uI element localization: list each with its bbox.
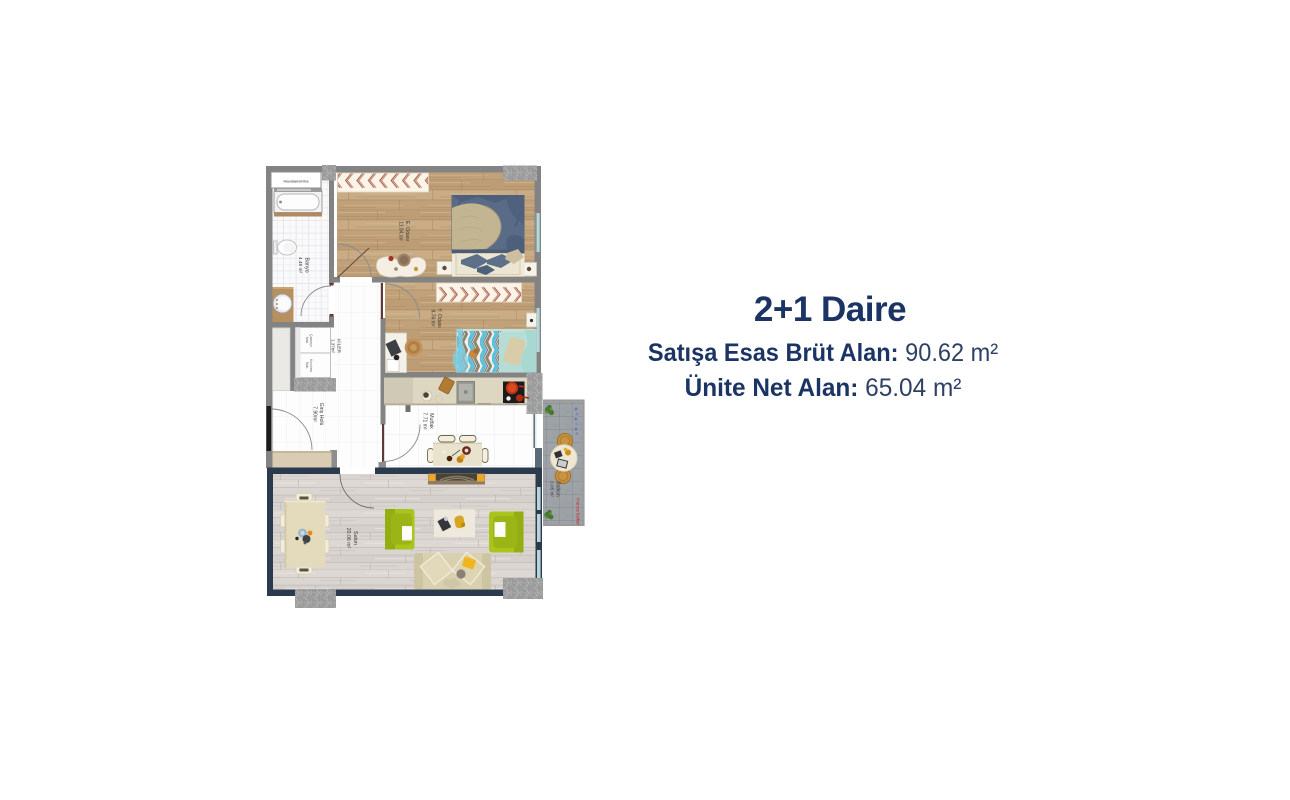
svg-text:Salon: Salon: [352, 531, 358, 545]
svg-text:7.71 m²: 7.71 m²: [422, 413, 428, 430]
svg-text:4.48 m²: 4.48 m²: [297, 257, 303, 274]
svg-text:Balkon: Balkon: [555, 481, 561, 497]
svg-text:Fransız balkon: Fransız balkon: [576, 498, 581, 526]
svg-text:3.05 m²: 3.05 m²: [549, 481, 554, 497]
svg-text:20.06 m²: 20.06 m²: [345, 528, 351, 549]
svg-text:Mak.: Mak.: [305, 362, 309, 369]
svg-text:E. Odası: E. Odası: [404, 221, 410, 241]
svg-text:Mutfak: Mutfak: [428, 413, 434, 429]
svg-text:1.37m²: 1.37m²: [331, 339, 336, 353]
svg-text:Giriş Holü: Giriş Holü: [318, 403, 324, 426]
svg-text:7.90m²: 7.90m²: [312, 406, 318, 422]
svg-text:11.94 m²: 11.94 m²: [398, 221, 404, 241]
svg-text:Banyo: Banyo: [304, 257, 310, 272]
svg-text:Mak.: Mak.: [305, 337, 309, 344]
svg-text:Y. Odası: Y. Odası: [436, 308, 442, 328]
svg-text:8.76 m²: 8.76 m²: [430, 310, 436, 327]
svg-text:Havalandırma: Havalandırma: [284, 179, 310, 184]
